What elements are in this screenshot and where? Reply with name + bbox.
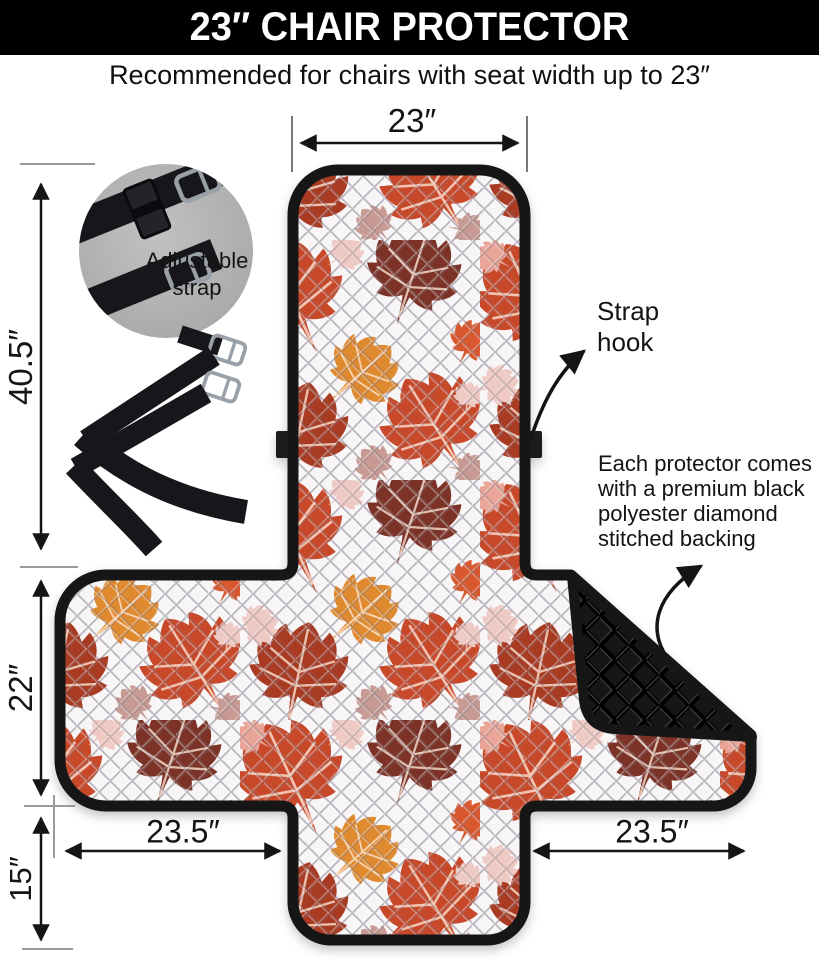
- chair-protector-infographic: 23″ CHAIR PROTECTOR Recommended for chai…: [0, 0, 819, 960]
- backing-note-line4: stitched backing: [598, 526, 812, 551]
- dim-label-right-wing: 23.5″: [615, 814, 689, 851]
- adjustable-strap-label: Adjustable strap: [146, 247, 249, 301]
- page-title: 23″ CHAIR PROTECTOR: [190, 5, 630, 50]
- backing-note-line2: with a premium black: [598, 476, 812, 501]
- strap-hook-label: Strap hook: [597, 296, 659, 358]
- strap-hook-arrow: [530, 351, 584, 441]
- subtitle: Recommended for chairs with seat width u…: [0, 60, 819, 91]
- strap-hook-line2: hook: [597, 327, 659, 358]
- dim-label-left-wing: 23.5″: [146, 814, 220, 851]
- dim-label-skirt-height: 15″: [3, 856, 39, 901]
- backing-note-line3: polyester diamond: [598, 501, 812, 526]
- dim-label-seat-height: 22″: [2, 664, 40, 712]
- header-bar: 23″ CHAIR PROTECTOR: [0, 0, 819, 55]
- strap-hook-line1: Strap: [597, 296, 659, 327]
- straps-photo: [74, 334, 247, 549]
- backing-note-line1: Each protector comes: [598, 451, 812, 476]
- dimension-ticks: [20, 164, 95, 949]
- adjustable-strap-line2: strap: [146, 274, 249, 301]
- backing-arrow: [657, 566, 701, 656]
- adjustable-strap-line1: Adjustable: [146, 247, 249, 274]
- backing-note: Each protector comes with a premium blac…: [598, 451, 812, 551]
- dim-label-top-width: 23″: [388, 102, 436, 140]
- dim-label-back-height: 40.5″: [2, 329, 40, 405]
- folded-corner-black-backing: [572, 576, 752, 737]
